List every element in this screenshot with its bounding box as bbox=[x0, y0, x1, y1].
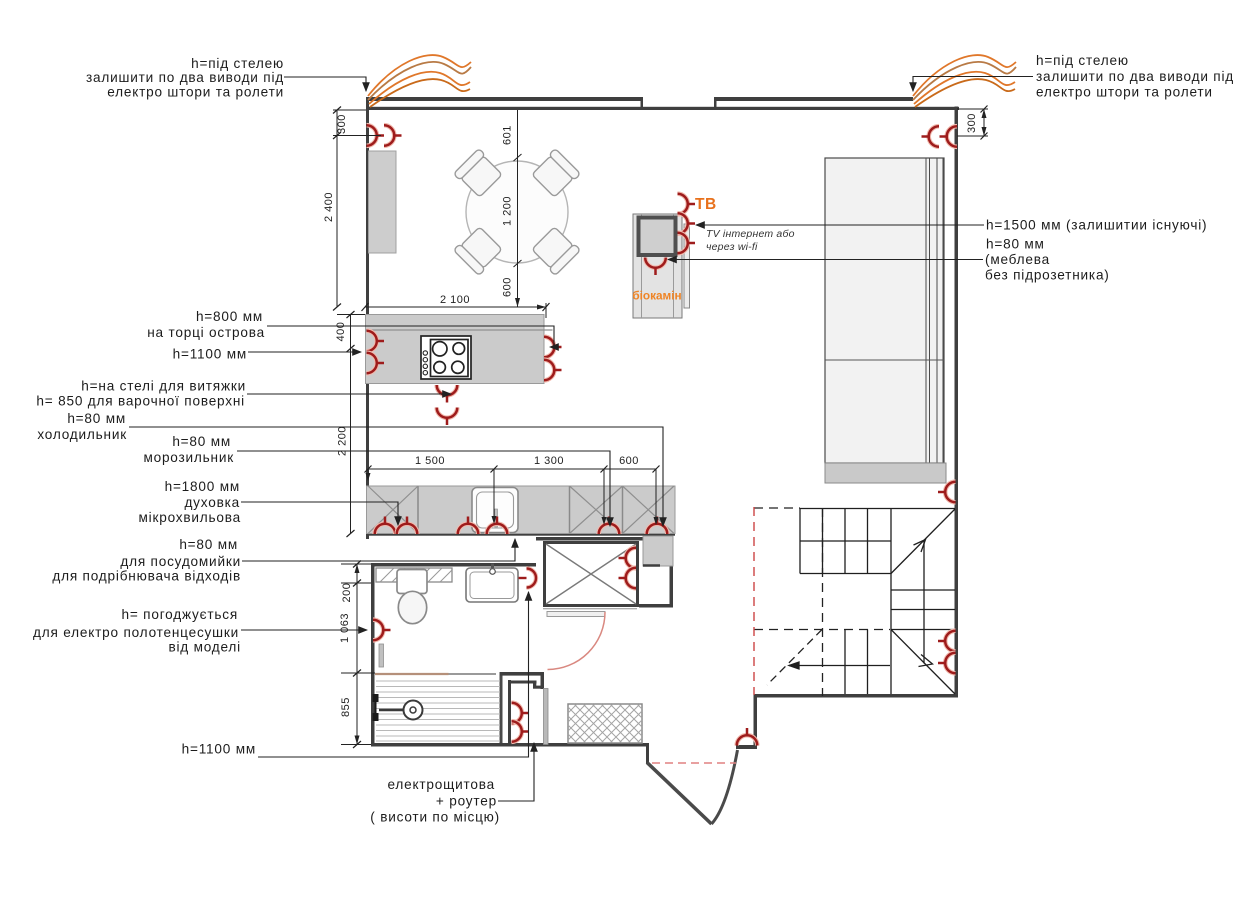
svg-text:TV інтернет або: TV інтернет або bbox=[706, 228, 795, 240]
svg-text:для електро полотенцесушки: для електро полотенцесушки bbox=[33, 625, 239, 640]
svg-text:600: 600 bbox=[619, 455, 639, 467]
svg-text:електрощитова: електрощитова bbox=[388, 777, 496, 792]
svg-text:(меблева: (меблева bbox=[985, 252, 1050, 267]
svg-text:h=800 мм: h=800 мм bbox=[196, 309, 263, 324]
svg-text:300: 300 bbox=[336, 114, 348, 134]
svg-text:2 100: 2 100 bbox=[440, 294, 470, 306]
svg-text:h=1100 мм: h=1100 мм bbox=[182, 742, 256, 757]
svg-text:400: 400 bbox=[335, 322, 347, 342]
svg-text:h=під стелею: h=під стелею bbox=[1036, 53, 1129, 68]
svg-text:на торці острова: на торці острова bbox=[147, 325, 265, 340]
svg-text:( висоти по місцю): ( висоти по місцю) bbox=[370, 810, 500, 825]
svg-text:300: 300 bbox=[966, 113, 978, 133]
svg-text:холодильник: холодильник bbox=[37, 427, 127, 442]
svg-text:h=80 мм: h=80 мм bbox=[179, 537, 238, 552]
svg-text:1 200: 1 200 bbox=[502, 196, 514, 226]
svg-text:1 063: 1 063 bbox=[339, 613, 351, 643]
svg-text:через wi-fi: через wi-fi bbox=[706, 241, 758, 253]
svg-text:для посудомийки: для посудомийки bbox=[120, 554, 241, 569]
svg-text:2 400: 2 400 bbox=[323, 192, 335, 222]
svg-text:+ роутер: + роутер bbox=[436, 794, 497, 809]
svg-text:h=1500 мм (залишитии існуючі): h=1500 мм (залишитии існуючі) bbox=[986, 218, 1207, 233]
svg-text:електро штори та ролети: електро штори та ролети bbox=[1036, 85, 1213, 100]
svg-text:h=1800 мм: h=1800 мм bbox=[165, 479, 240, 494]
svg-text:200: 200 bbox=[341, 583, 353, 603]
svg-text:h=80 мм: h=80 мм bbox=[172, 434, 231, 449]
svg-text:для подрібнювача відходів: для подрібнювача відходів bbox=[52, 569, 241, 584]
svg-text:h=80 мм: h=80 мм bbox=[67, 411, 126, 426]
svg-text:від моделі: від моделі bbox=[168, 640, 241, 655]
svg-text:855: 855 bbox=[340, 697, 352, 717]
svg-text:h= 850 для варочної поверхні: h= 850 для варочної поверхні bbox=[36, 394, 245, 409]
svg-text:h=1100 мм: h=1100 мм bbox=[173, 347, 247, 362]
svg-text:біокамін: біокамін bbox=[632, 289, 681, 303]
svg-text:без підрозетника): без підрозетника) bbox=[985, 268, 1110, 283]
svg-text:мікрохвильова: мікрохвильова bbox=[139, 510, 242, 525]
svg-text:600: 600 bbox=[502, 277, 514, 297]
svg-text:залишити по два виводи під: залишити по два виводи під bbox=[86, 70, 284, 85]
svg-text:h= погоджується: h= погоджується bbox=[122, 607, 239, 622]
svg-text:залишити по два виводи під: залишити по два виводи під bbox=[1036, 69, 1234, 84]
svg-text:1 500: 1 500 bbox=[415, 455, 445, 467]
svg-text:h=під стелею: h=під стелею bbox=[191, 56, 284, 71]
svg-text:1 300: 1 300 bbox=[534, 455, 564, 467]
svg-text:морозильник: морозильник bbox=[143, 450, 234, 465]
svg-text:h=80 мм: h=80 мм bbox=[986, 237, 1045, 252]
svg-text:духовка: духовка bbox=[184, 495, 240, 510]
svg-text:2 200: 2 200 bbox=[337, 426, 349, 456]
svg-text:h=на стелі для витяжки: h=на стелі для витяжки bbox=[81, 379, 246, 394]
svg-text:601: 601 bbox=[502, 125, 514, 145]
svg-text:ТВ: ТВ bbox=[695, 196, 717, 213]
svg-text:електро штори та ролети: електро штори та ролети bbox=[107, 85, 284, 100]
